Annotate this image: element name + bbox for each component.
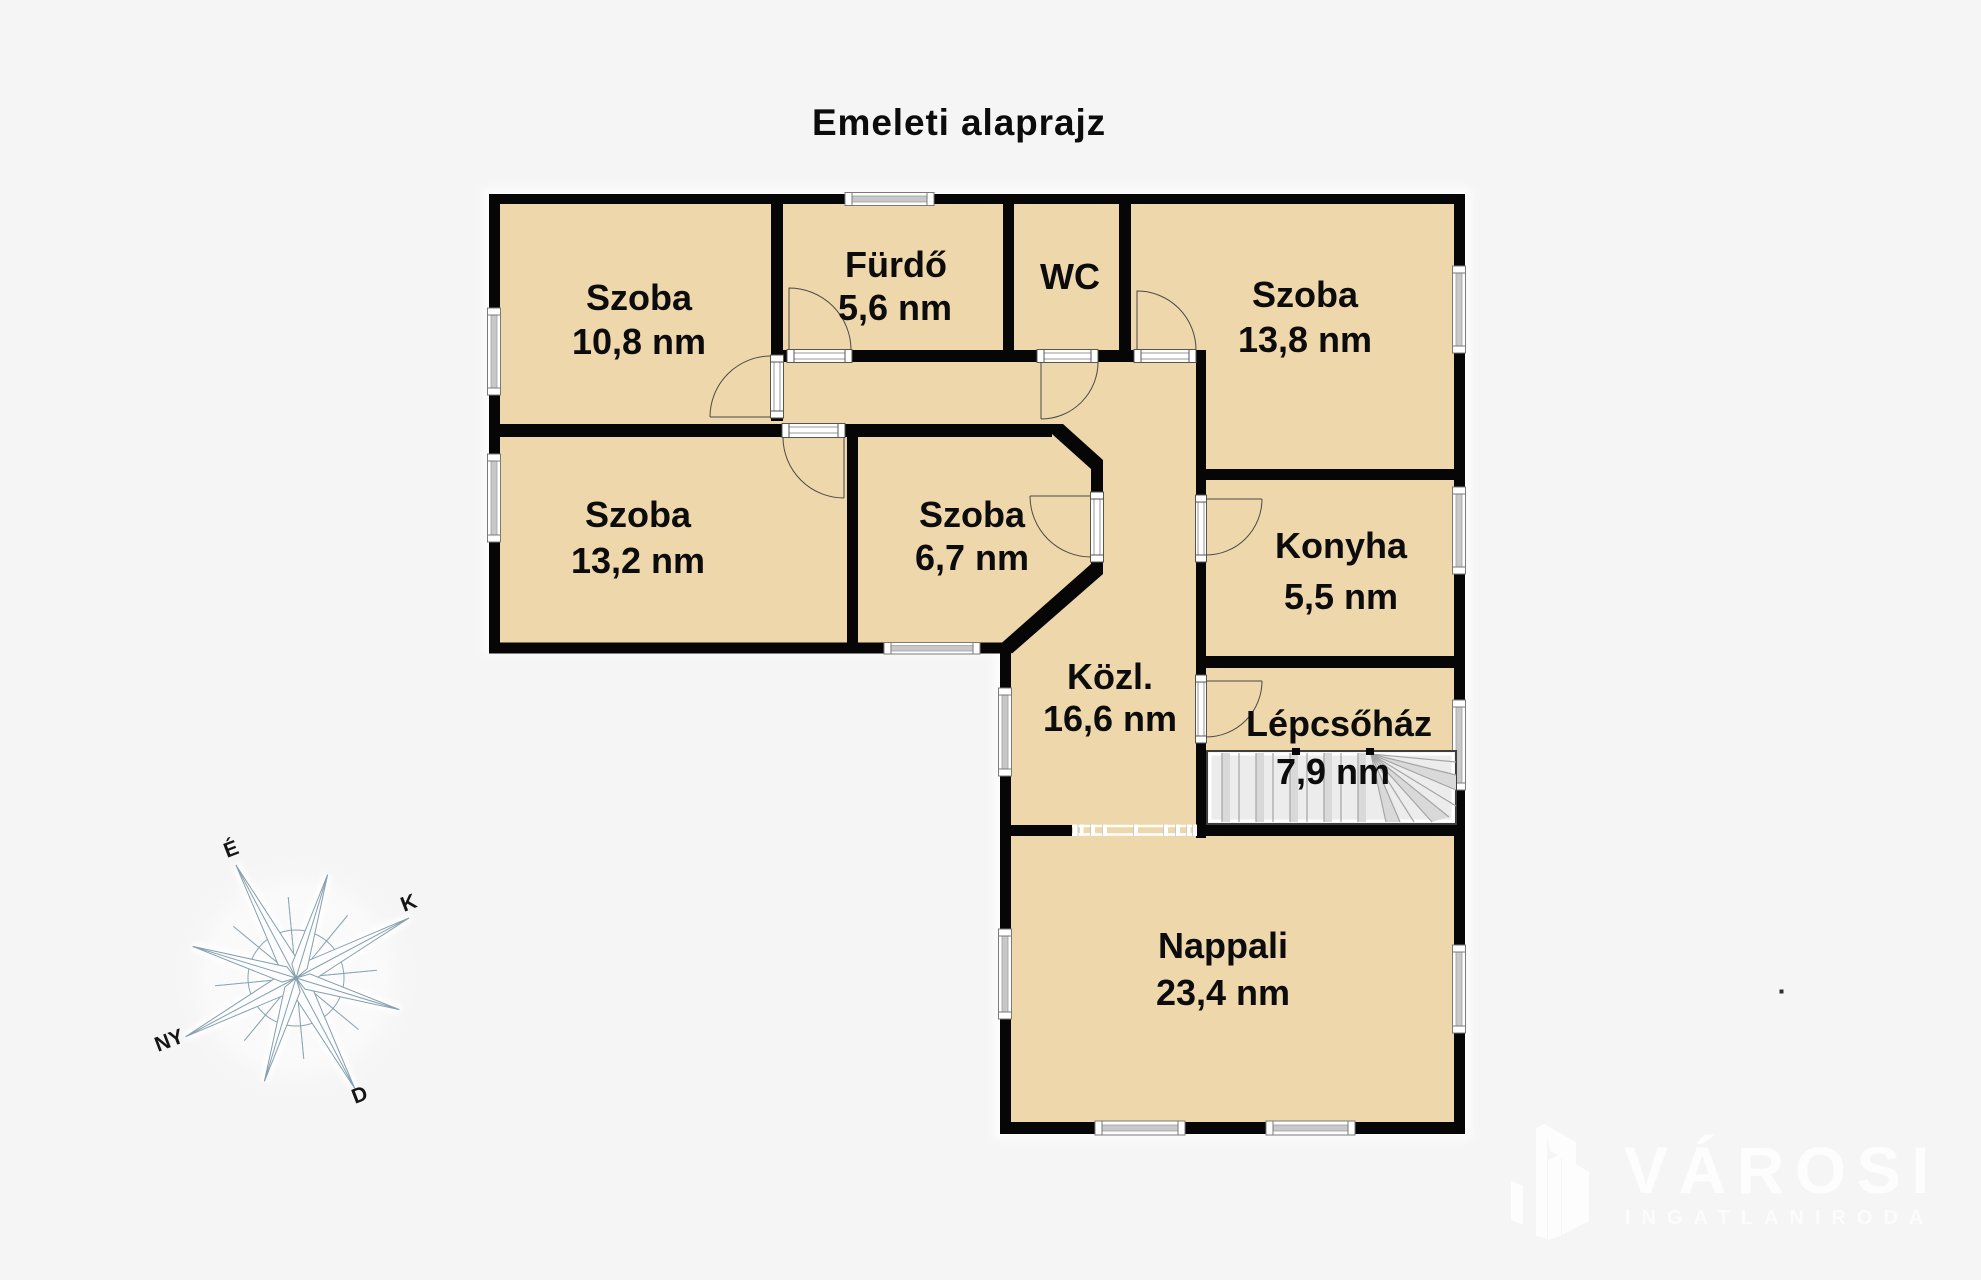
svg-text:Szoba: Szoba [586,277,693,318]
svg-text:WC: WC [1040,256,1100,297]
svg-text:10,8 nm: 10,8 nm [572,321,706,362]
svg-text:16,6 nm: 16,6 nm [1043,698,1177,739]
svg-text:13,2 nm: 13,2 nm [571,540,705,581]
svg-text:5,6 nm: 5,6 nm [838,287,952,328]
svg-text:Lépcsőház: Lépcsőház [1246,703,1432,744]
svg-text:Emeleti alaprajz: Emeleti alaprajz [812,102,1106,143]
svg-text:Konyha: Konyha [1275,525,1408,566]
svg-text:13,8 nm: 13,8 nm [1238,319,1372,360]
svg-text:23,4 nm: 23,4 nm [1156,972,1290,1013]
svg-text:VÁROSI: VÁROSI [1624,1133,1940,1207]
svg-text:Nappali: Nappali [1158,925,1288,966]
svg-text:5,5 nm: 5,5 nm [1284,576,1398,617]
svg-text:Szoba: Szoba [1252,274,1359,315]
svg-text:Közl.: Közl. [1067,656,1153,697]
svg-text:Szoba: Szoba [585,494,692,535]
svg-text:7,9 nm: 7,9 nm [1276,751,1390,792]
svg-text:INGATLANIRODA: INGATLANIRODA [1625,1207,1934,1229]
svg-text:Szoba: Szoba [919,494,1026,535]
svg-text:6,7 nm: 6,7 nm [915,537,1029,578]
svg-text:Fürdő: Fürdő [845,244,947,285]
